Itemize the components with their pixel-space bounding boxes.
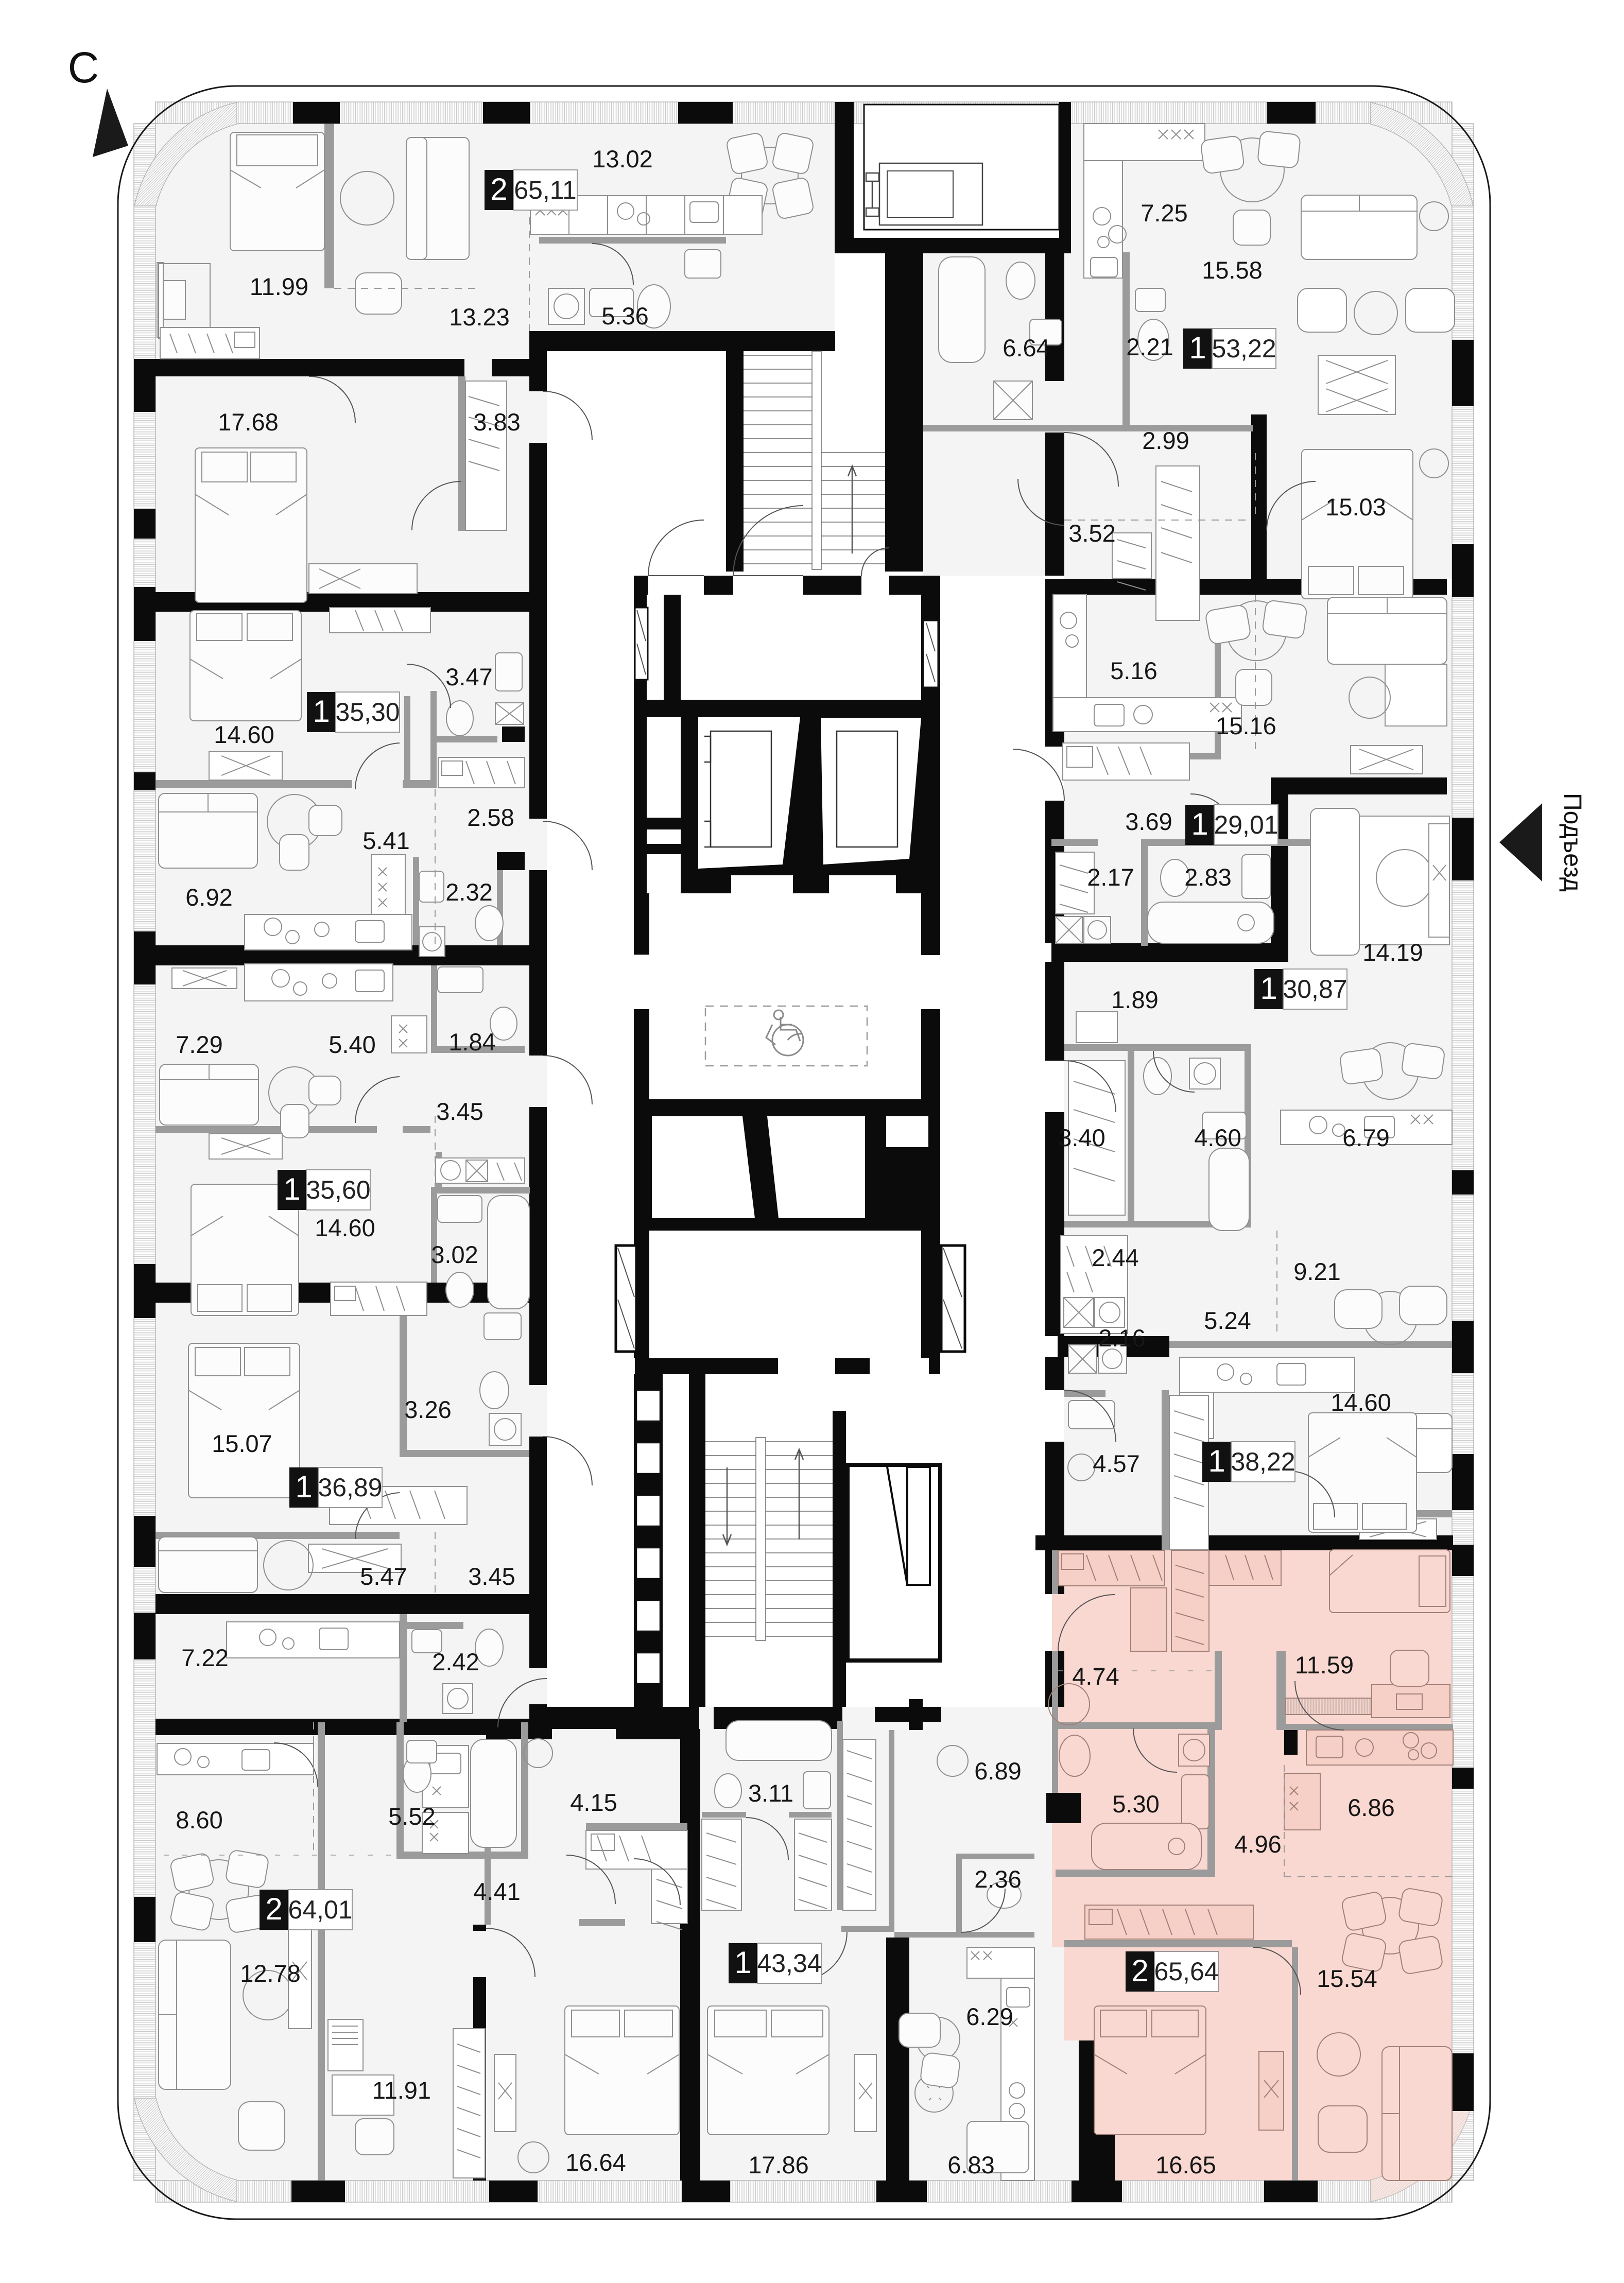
svg-text:12.78: 12.78 xyxy=(240,1960,301,1987)
svg-text:5.40: 5.40 xyxy=(329,1031,375,1058)
svg-text:5.30: 5.30 xyxy=(1112,1790,1159,1818)
svg-text:9.21: 9.21 xyxy=(1293,1258,1340,1285)
svg-text:3.02: 3.02 xyxy=(431,1241,478,1268)
svg-text:7.25: 7.25 xyxy=(1141,199,1187,227)
svg-text:1: 1 xyxy=(1260,971,1277,1006)
svg-text:4.74: 4.74 xyxy=(1072,1663,1119,1690)
svg-text:35,30: 35,30 xyxy=(335,698,400,727)
svg-text:2.17: 2.17 xyxy=(1087,863,1134,891)
svg-text:6.79: 6.79 xyxy=(1342,1124,1389,1151)
svg-text:30,87: 30,87 xyxy=(1283,975,1347,1004)
svg-text:3.52: 3.52 xyxy=(1068,520,1115,547)
svg-text:1.89: 1.89 xyxy=(1111,986,1158,1013)
svg-text:5.24: 5.24 xyxy=(1204,1307,1251,1334)
svg-text:2.44: 2.44 xyxy=(1092,1244,1138,1271)
svg-text:15.58: 15.58 xyxy=(1202,256,1263,284)
svg-text:17.68: 17.68 xyxy=(218,408,279,436)
svg-text:3.45: 3.45 xyxy=(468,1563,515,1590)
svg-text:1.84: 1.84 xyxy=(448,1028,495,1056)
svg-text:5.36: 5.36 xyxy=(601,302,648,330)
svg-text:2.32: 2.32 xyxy=(445,878,492,906)
svg-text:14.60: 14.60 xyxy=(315,1214,375,1241)
svg-text:43,34: 43,34 xyxy=(757,1949,821,1978)
svg-text:11.91: 11.91 xyxy=(372,2077,431,2104)
svg-text:11.99: 11.99 xyxy=(250,273,308,300)
svg-text:1: 1 xyxy=(295,1469,312,1504)
svg-text:6.92: 6.92 xyxy=(185,884,232,911)
svg-text:1: 1 xyxy=(313,694,330,729)
svg-text:С: С xyxy=(68,43,99,92)
svg-text:6.83: 6.83 xyxy=(947,2151,994,2178)
svg-text:1: 1 xyxy=(1208,1444,1225,1478)
svg-text:15.16: 15.16 xyxy=(1216,712,1276,739)
svg-text:16.65: 16.65 xyxy=(1155,2151,1216,2178)
svg-text:14.60: 14.60 xyxy=(1331,1389,1391,1416)
svg-text:4.96: 4.96 xyxy=(1234,1830,1281,1858)
svg-text:13.02: 13.02 xyxy=(592,145,653,172)
svg-text:5.52: 5.52 xyxy=(388,1803,435,1830)
svg-text:14.19: 14.19 xyxy=(1362,939,1423,966)
svg-text:2.21: 2.21 xyxy=(1126,333,1173,360)
svg-text:15.03: 15.03 xyxy=(1325,493,1386,521)
svg-text:1: 1 xyxy=(283,1172,300,1206)
svg-text:6.89: 6.89 xyxy=(974,1757,1021,1785)
svg-text:4.15: 4.15 xyxy=(570,1789,617,1816)
svg-text:5.47: 5.47 xyxy=(360,1563,407,1590)
svg-text:1: 1 xyxy=(1191,807,1208,841)
svg-text:2.16: 2.16 xyxy=(1098,1324,1145,1352)
svg-text:14.60: 14.60 xyxy=(214,721,274,748)
svg-text:2.99: 2.99 xyxy=(1142,427,1189,454)
svg-text:8.60: 8.60 xyxy=(176,1806,222,1834)
svg-text:5.41: 5.41 xyxy=(362,827,409,854)
svg-text:2.36: 2.36 xyxy=(974,1865,1021,1893)
svg-text:35,60: 35,60 xyxy=(306,1175,370,1204)
svg-text:3.83: 3.83 xyxy=(473,408,520,436)
svg-text:3.45: 3.45 xyxy=(436,1098,483,1125)
svg-text:7.22: 7.22 xyxy=(181,1644,228,1671)
svg-text:53,22: 53,22 xyxy=(1212,334,1276,363)
svg-text:2.83: 2.83 xyxy=(1184,863,1231,891)
svg-text:15.54: 15.54 xyxy=(1317,1965,1377,1992)
svg-text:7.29: 7.29 xyxy=(176,1031,222,1058)
svg-text:6.86: 6.86 xyxy=(1347,1794,1394,1821)
svg-text:65,64: 65,64 xyxy=(1154,1957,1218,1986)
svg-text:6.29: 6.29 xyxy=(966,2003,1013,2030)
svg-text:4.60: 4.60 xyxy=(1194,1124,1241,1151)
svg-text:3.69: 3.69 xyxy=(1125,808,1172,835)
svg-text:16.64: 16.64 xyxy=(565,2149,626,2176)
svg-text:3.40: 3.40 xyxy=(1058,1124,1105,1151)
svg-text:4.41: 4.41 xyxy=(473,1878,520,1905)
svg-text:6.64: 6.64 xyxy=(1003,334,1049,361)
svg-text:3.26: 3.26 xyxy=(404,1396,451,1423)
svg-text:1: 1 xyxy=(734,1945,751,1980)
svg-text:1: 1 xyxy=(1189,331,1206,365)
svg-text:2: 2 xyxy=(265,1892,282,1926)
svg-text:29,01: 29,01 xyxy=(1214,810,1278,839)
svg-text:65,11: 65,11 xyxy=(514,176,576,204)
svg-text:64,01: 64,01 xyxy=(288,1895,352,1924)
svg-text:2.58: 2.58 xyxy=(467,804,514,831)
svg-text:3.11: 3.11 xyxy=(748,1779,793,1807)
svg-text:36,89: 36,89 xyxy=(318,1473,382,1502)
svg-text:Подъезд: Подъезд xyxy=(1559,793,1586,892)
svg-text:4.57: 4.57 xyxy=(1093,1450,1139,1477)
svg-text:15.07: 15.07 xyxy=(212,1430,272,1457)
svg-text:3.47: 3.47 xyxy=(445,663,492,690)
svg-text:13.23: 13.23 xyxy=(449,303,510,331)
svg-text:11.59: 11.59 xyxy=(1295,1651,1354,1679)
svg-text:2: 2 xyxy=(490,172,507,206)
svg-text:2: 2 xyxy=(1131,1953,1148,1988)
svg-text:38,22: 38,22 xyxy=(1231,1447,1295,1476)
svg-text:17.86: 17.86 xyxy=(748,2151,809,2178)
svg-text:5.16: 5.16 xyxy=(1110,657,1157,684)
svg-text:2.42: 2.42 xyxy=(432,1648,479,1675)
